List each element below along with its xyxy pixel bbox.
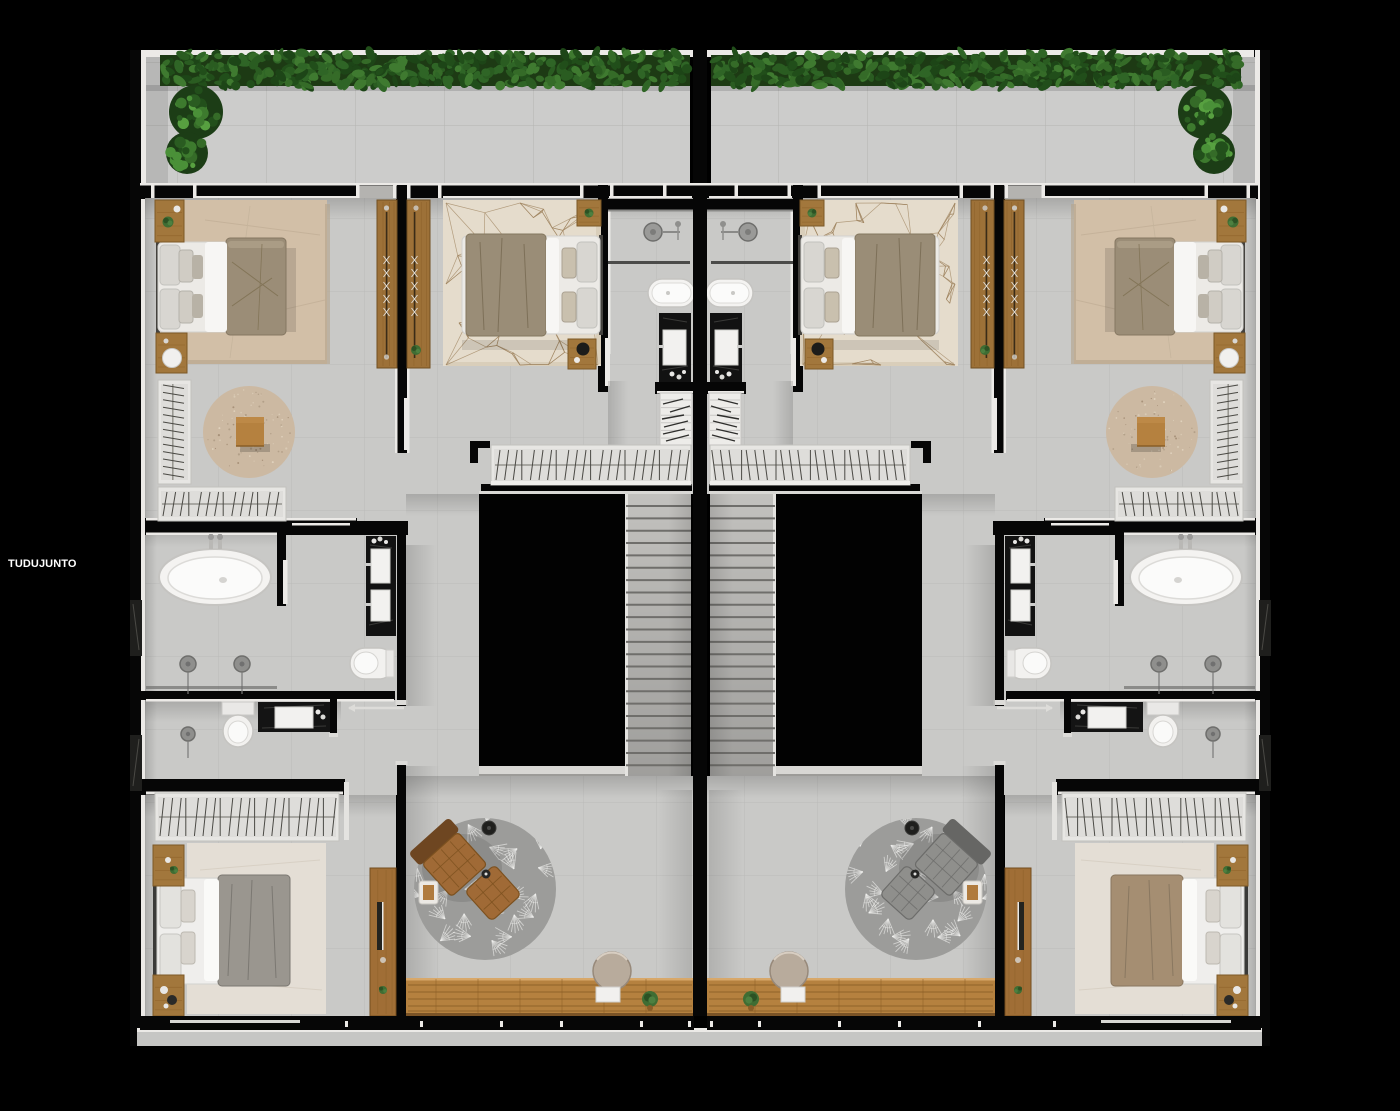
svg-text:TUDUJUNTO: TUDUJUNTO [8, 558, 77, 570]
